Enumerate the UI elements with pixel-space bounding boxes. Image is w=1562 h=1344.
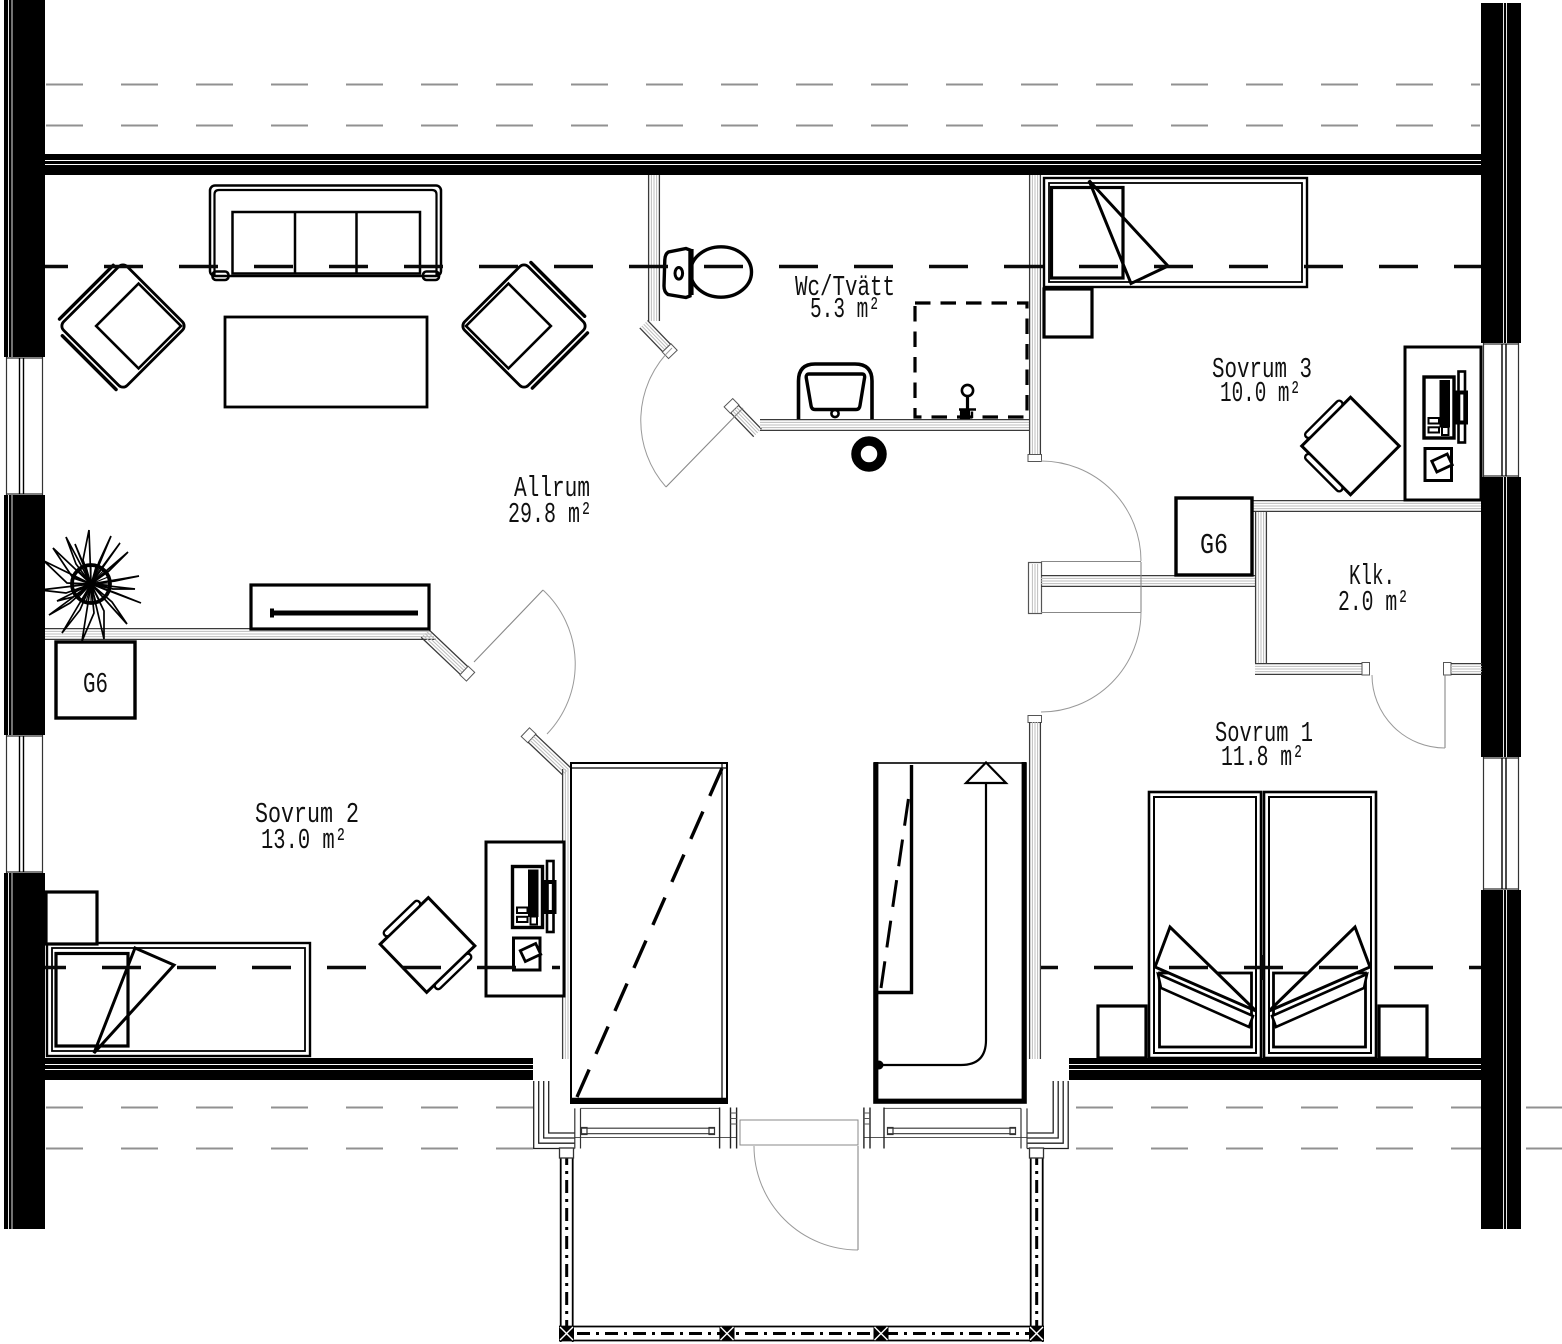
- svg-text:11.8 m²: 11.8 m²: [1221, 741, 1304, 774]
- svg-text:G6: G6: [83, 668, 108, 701]
- svg-text:G6: G6: [1200, 529, 1228, 562]
- svg-text:10.0 m²: 10.0 m²: [1220, 377, 1301, 410]
- svg-text:29.8 m²: 29.8 m²: [508, 498, 592, 531]
- svg-text:13.0 m²: 13.0 m²: [261, 824, 347, 857]
- svg-text:2.0 m²: 2.0 m²: [1338, 586, 1409, 619]
- svg-text:5.3 m²: 5.3 m²: [810, 293, 880, 326]
